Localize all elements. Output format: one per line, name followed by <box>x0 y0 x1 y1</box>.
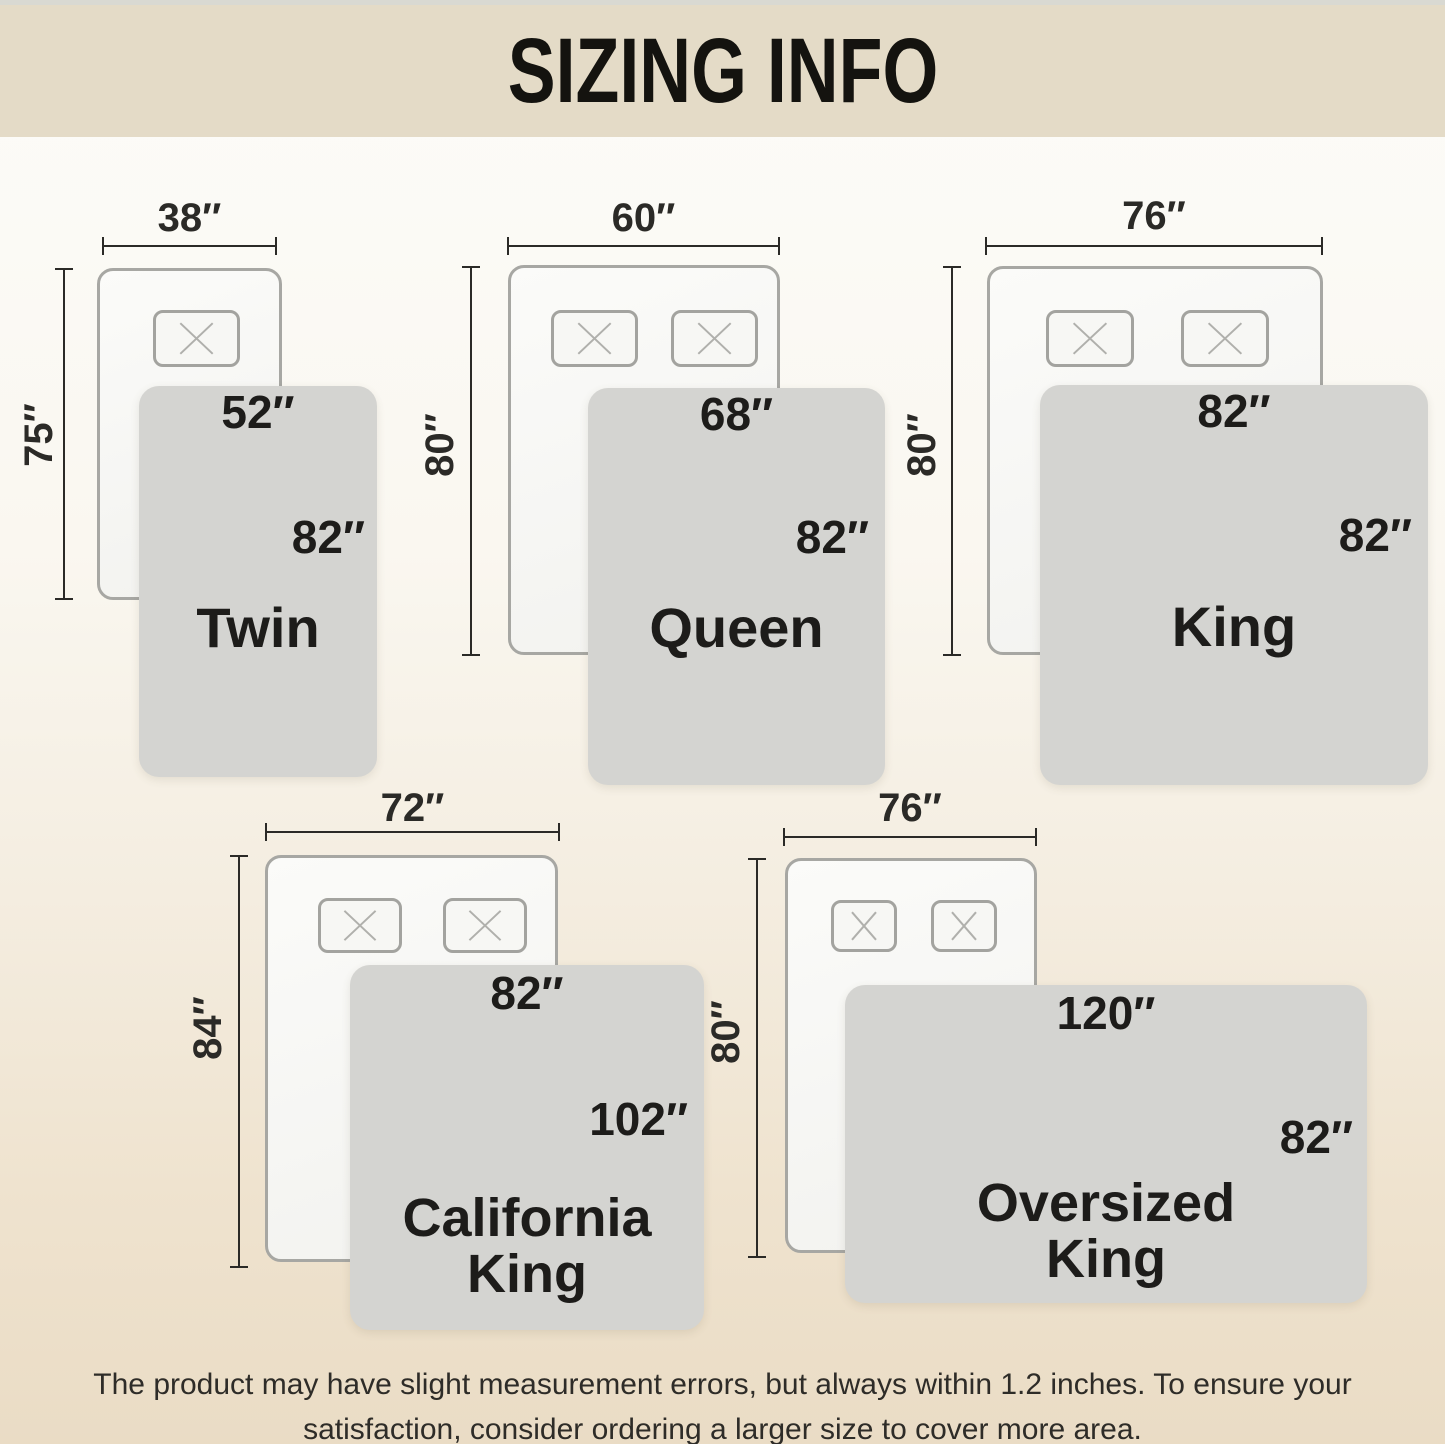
size-name: King <box>1040 597 1428 657</box>
width-dimension-line <box>265 831 560 833</box>
bed-width-label: 72″ <box>265 786 560 830</box>
size-name: Twin <box>139 598 377 658</box>
pillow-cross-icon <box>156 313 237 364</box>
pillow-cross-icon <box>446 901 524 950</box>
pillow-icon <box>1046 310 1134 367</box>
blanket-width-label: 82″ <box>1040 387 1428 435</box>
blanket-california-king: 82″ 102″ California King <box>350 965 704 1330</box>
pillow-icon <box>831 900 897 952</box>
blanket-twin: 52″ 82″ Twin <box>139 386 377 777</box>
size-name-line2: King <box>350 1246 704 1302</box>
bed-length-label: 84″ <box>186 983 230 1073</box>
pillow-icon <box>318 898 402 953</box>
pillow-cross-icon <box>1049 313 1131 364</box>
length-dimension-line <box>756 858 758 1258</box>
blanket-width-label: 120″ <box>845 989 1367 1037</box>
blanket-length-label: 102″ <box>589 1095 688 1143</box>
length-dimension-line <box>470 266 472 656</box>
width-dimension-line <box>985 245 1323 247</box>
sizing-info-page: SIZING INFO 38″ 75″ 52″ 82″ Twin 60″ 80″ <box>0 0 1445 1444</box>
size-name-line2: King <box>845 1231 1367 1287</box>
width-dimension-line <box>102 245 277 247</box>
blanket-length-label: 82″ <box>292 513 365 561</box>
blanket-width-label: 68″ <box>588 390 885 438</box>
pillow-icon <box>671 310 758 367</box>
width-dimension-line <box>507 245 780 247</box>
width-dimension-line <box>783 836 1037 838</box>
blanket-length-label: 82″ <box>796 513 869 561</box>
blanket-queen: 68″ 82″ Queen <box>588 388 885 785</box>
blanket-length-label: 82″ <box>1280 1113 1353 1161</box>
length-dimension-line <box>63 268 65 600</box>
pillow-icon <box>551 310 638 367</box>
size-name: Queen <box>588 598 885 658</box>
bed-length-label: 80″ <box>704 987 748 1077</box>
length-dimension-line <box>238 855 240 1268</box>
pillow-cross-icon <box>554 313 635 364</box>
pillow-icon <box>153 310 240 367</box>
bed-width-label: 76″ <box>783 786 1037 830</box>
size-name: California King <box>350 1190 704 1302</box>
pillow-cross-icon <box>321 901 399 950</box>
blanket-oversized-king: 120″ 82″ Oversized King <box>845 985 1367 1303</box>
size-name-line1: California <box>350 1190 704 1246</box>
page-title: SIZING INFO <box>507 19 938 124</box>
bed-width-label: 76″ <box>985 194 1323 238</box>
pillow-cross-icon <box>674 313 755 364</box>
pillow-cross-icon <box>934 903 994 949</box>
blanket-king: 82″ 82″ King <box>1040 385 1428 785</box>
footer-note-line1: The product may have slight measurement … <box>0 1362 1445 1407</box>
banner: SIZING INFO <box>0 5 1445 137</box>
size-name: Oversized King <box>845 1175 1367 1287</box>
length-dimension-line <box>951 266 953 656</box>
pillow-cross-icon <box>834 903 894 949</box>
blanket-length-label: 82″ <box>1339 511 1412 559</box>
pillow-icon <box>1181 310 1269 367</box>
size-name-line1: Oversized <box>845 1175 1367 1231</box>
pillow-icon <box>931 900 997 952</box>
blanket-width-label: 82″ <box>350 969 704 1017</box>
blanket-width-label: 52″ <box>139 388 377 436</box>
bed-length-label: 75″ <box>17 390 61 480</box>
bed-width-label: 60″ <box>507 196 780 240</box>
footer-note-line2: satisfaction, consider ordering a larger… <box>0 1407 1445 1444</box>
bed-width-label: 38″ <box>102 196 277 240</box>
footer-note: The product may have slight measurement … <box>0 1362 1445 1444</box>
bed-length-label: 80″ <box>900 400 944 490</box>
pillow-cross-icon <box>1184 313 1266 364</box>
bed-length-label: 80″ <box>418 400 462 490</box>
pillow-icon <box>443 898 527 953</box>
